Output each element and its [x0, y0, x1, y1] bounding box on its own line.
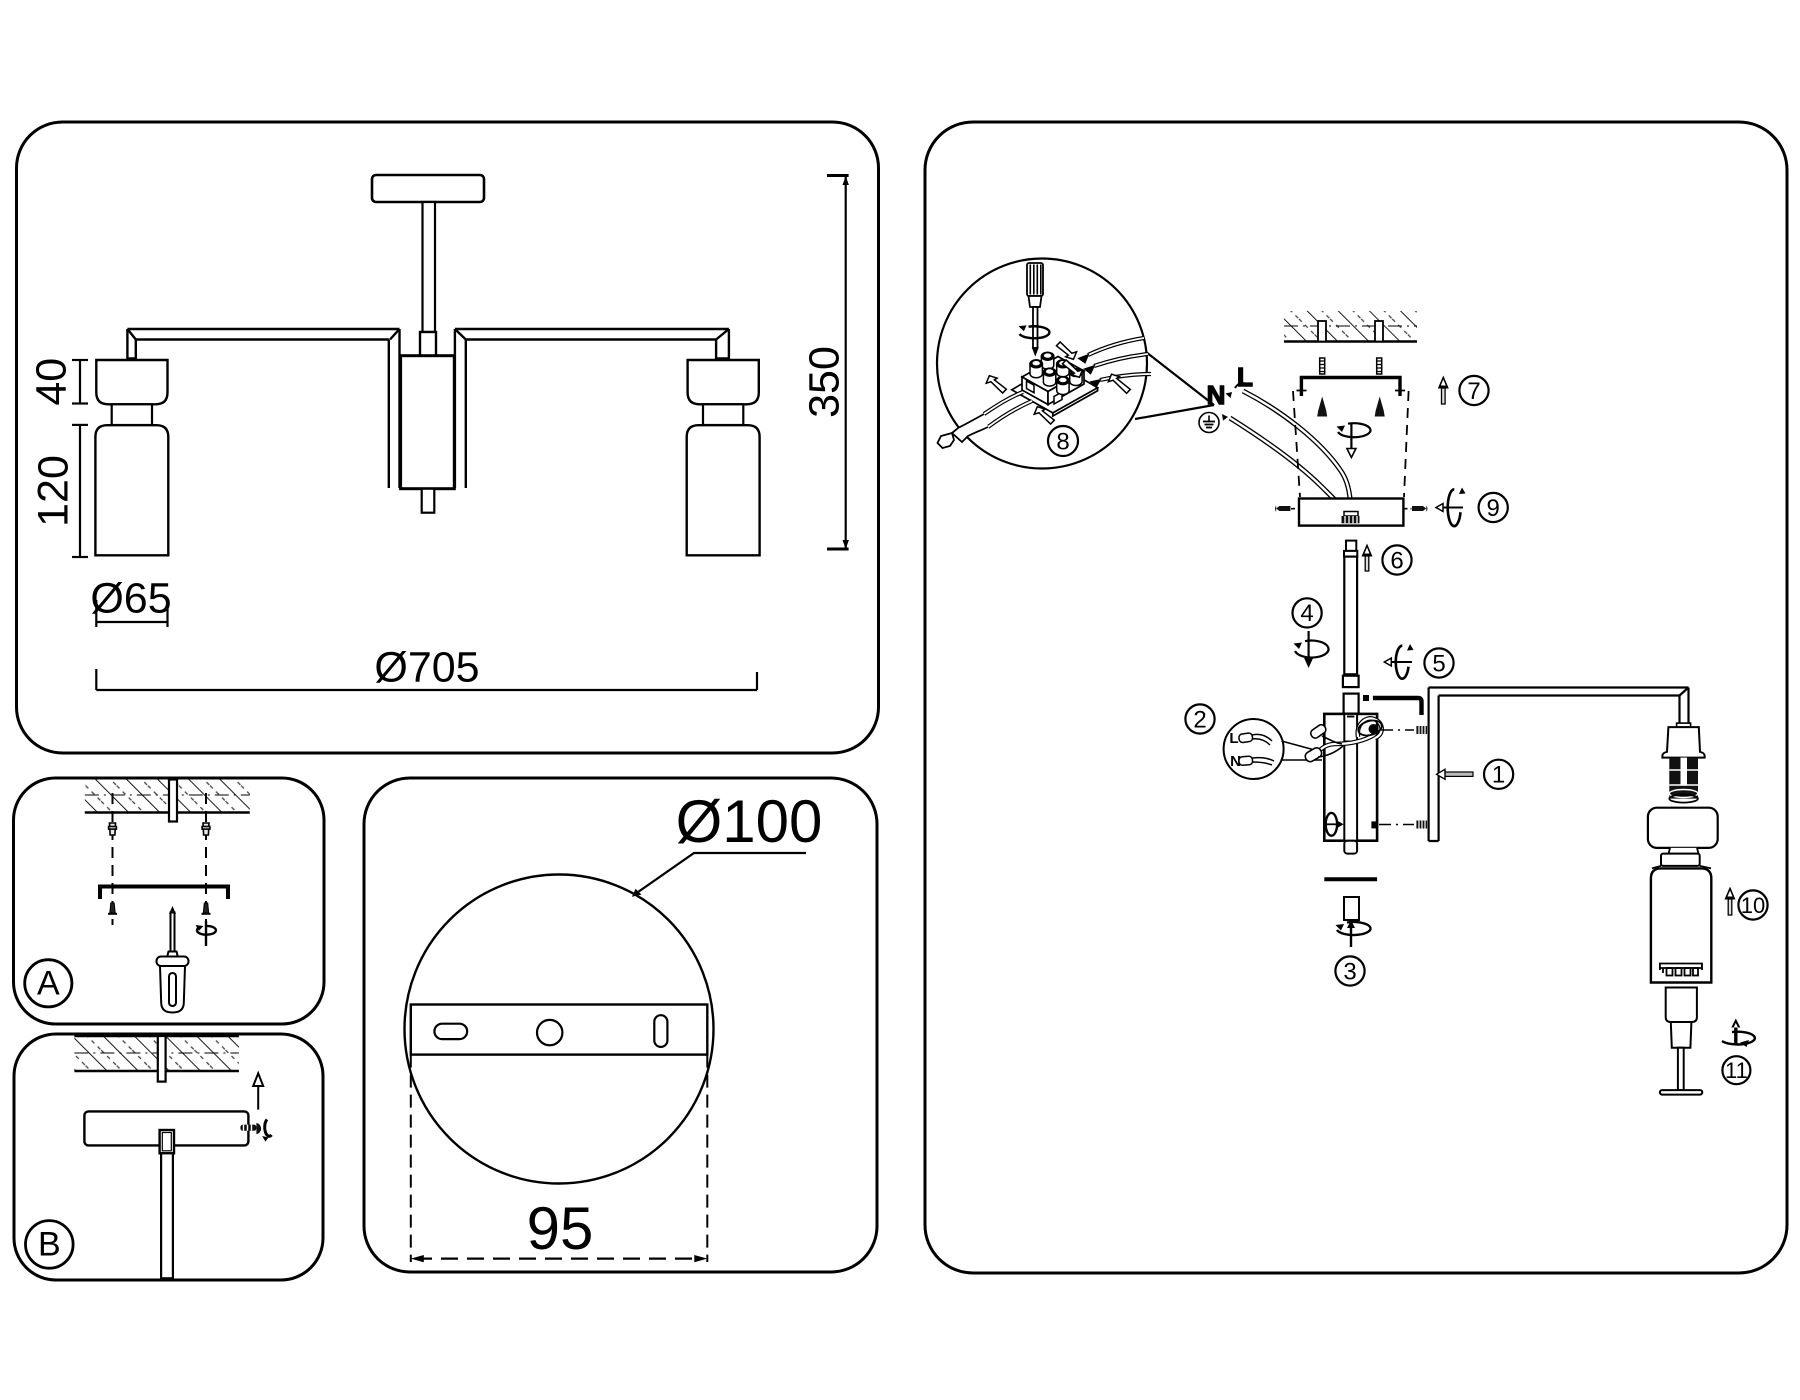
svg-text:1: 1 [1492, 762, 1505, 789]
svg-text:Ø705: Ø705 [374, 643, 479, 691]
svg-text:11: 11 [1725, 1058, 1748, 1083]
svg-text:40: 40 [27, 358, 75, 406]
svg-text:Ø100: Ø100 [676, 788, 823, 855]
svg-text:10: 10 [1741, 893, 1765, 918]
svg-text:L: L [1237, 362, 1253, 392]
svg-text:Ø65: Ø65 [90, 574, 171, 622]
svg-text:3: 3 [1343, 958, 1356, 985]
svg-text:5: 5 [1432, 650, 1445, 677]
svg-text:350: 350 [800, 346, 848, 418]
svg-text:7: 7 [1467, 378, 1480, 405]
svg-text:N: N [1207, 380, 1226, 410]
svg-text:2: 2 [1193, 706, 1206, 733]
svg-text:A: A [37, 964, 60, 1002]
svg-text:4: 4 [1300, 600, 1313, 627]
svg-text:120: 120 [29, 455, 77, 527]
svg-text:8: 8 [1056, 428, 1069, 455]
svg-text:6: 6 [1390, 547, 1403, 574]
svg-text:B: B [38, 1226, 61, 1264]
svg-text:9: 9 [1487, 495, 1500, 522]
svg-text:95: 95 [527, 1195, 594, 1262]
svg-text:L: L [1229, 730, 1238, 747]
